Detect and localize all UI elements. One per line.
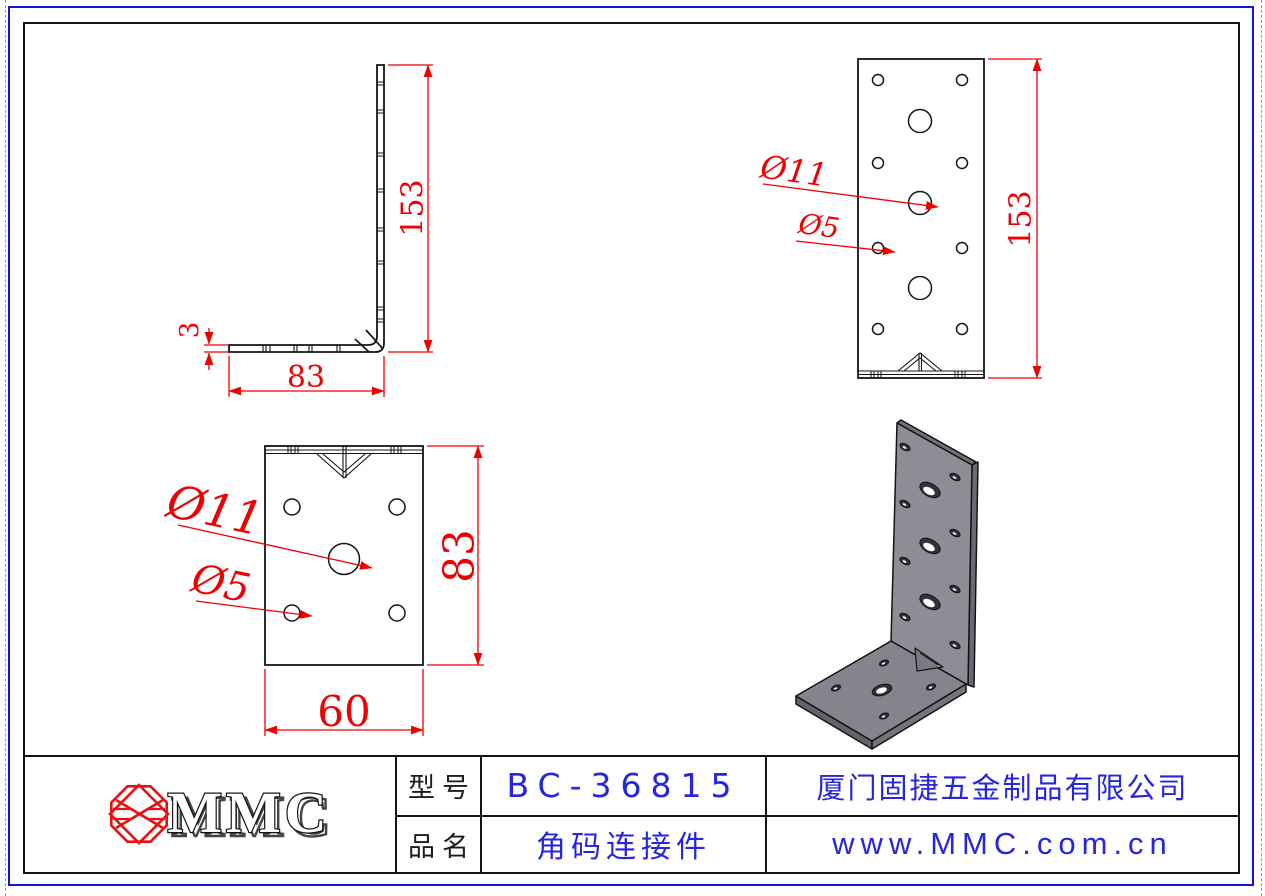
front-plate-outline xyxy=(858,59,984,378)
side-view: 3 83 153 xyxy=(175,65,433,397)
dimension-side-width-83: 83 xyxy=(229,356,384,397)
front-view: Ø11 Ø5 153 xyxy=(757,59,1042,378)
company-name-text: 厦门固捷五金制品有限公司 xyxy=(816,765,1188,807)
dim-text-front-height: 153 xyxy=(1004,190,1039,247)
model-value: BC-36815 xyxy=(480,757,765,815)
dimension-side-height-153: 153 xyxy=(388,65,433,352)
dim-text-top-height: 83 xyxy=(435,529,484,582)
dimension-front-height-153: 153 xyxy=(988,59,1042,378)
svg-text:Ø11: Ø11 xyxy=(757,147,830,194)
cad-drawing-sheet: { "sheet": { "colors": { "dimension_red"… xyxy=(0,0,1265,896)
svg-text:Ø5: Ø5 xyxy=(187,555,255,612)
dimension-top-height-83: 83 xyxy=(427,446,484,665)
website: www.MMC.com.cn xyxy=(765,815,1238,873)
title-block: MMC MMC 型号 BC-36815 厦门固捷五金制品有限公司 品名 角码连接… xyxy=(23,755,1240,874)
dim-text-side-width: 83 xyxy=(287,360,325,395)
product-name-label-text: 品名 xyxy=(401,825,476,864)
mmc-logo-octagon-emblem xyxy=(110,785,168,843)
iso-view xyxy=(796,420,978,749)
dim-text-top-width: 60 xyxy=(317,687,370,736)
top-plate-outline xyxy=(265,446,423,665)
dimension-top-width-60: 60 xyxy=(265,669,423,736)
mmc-logo-text: MMC MMC xyxy=(167,780,334,849)
model-label: 型号 xyxy=(395,757,480,815)
company-name: 厦门固捷五金制品有限公司 xyxy=(765,757,1238,815)
svg-text:Ø11: Ø11 xyxy=(161,473,267,546)
title-block-logo-cell: MMC MMC xyxy=(25,757,395,872)
dimension-thickness-3: 3 xyxy=(175,322,229,370)
dim-text-thickness: 3 xyxy=(175,322,205,339)
side-profile-outline xyxy=(229,65,384,352)
top-view: Ø11 Ø5 83 60 xyxy=(161,446,484,736)
svg-text:MMC: MMC xyxy=(167,780,330,845)
product-name-label: 品名 xyxy=(395,815,480,873)
model-label-text: 型号 xyxy=(401,766,476,805)
website-text: www.MMC.com.cn xyxy=(832,826,1173,862)
svg-text:Ø5: Ø5 xyxy=(796,207,842,245)
product-name-value-text: 角码连接件 xyxy=(536,822,711,866)
dim-text-side-height: 153 xyxy=(396,179,431,236)
mmc-logo: MMC MMC xyxy=(27,758,393,871)
product-name-value: 角码连接件 xyxy=(480,815,765,873)
model-value-text: BC-36815 xyxy=(507,766,741,805)
